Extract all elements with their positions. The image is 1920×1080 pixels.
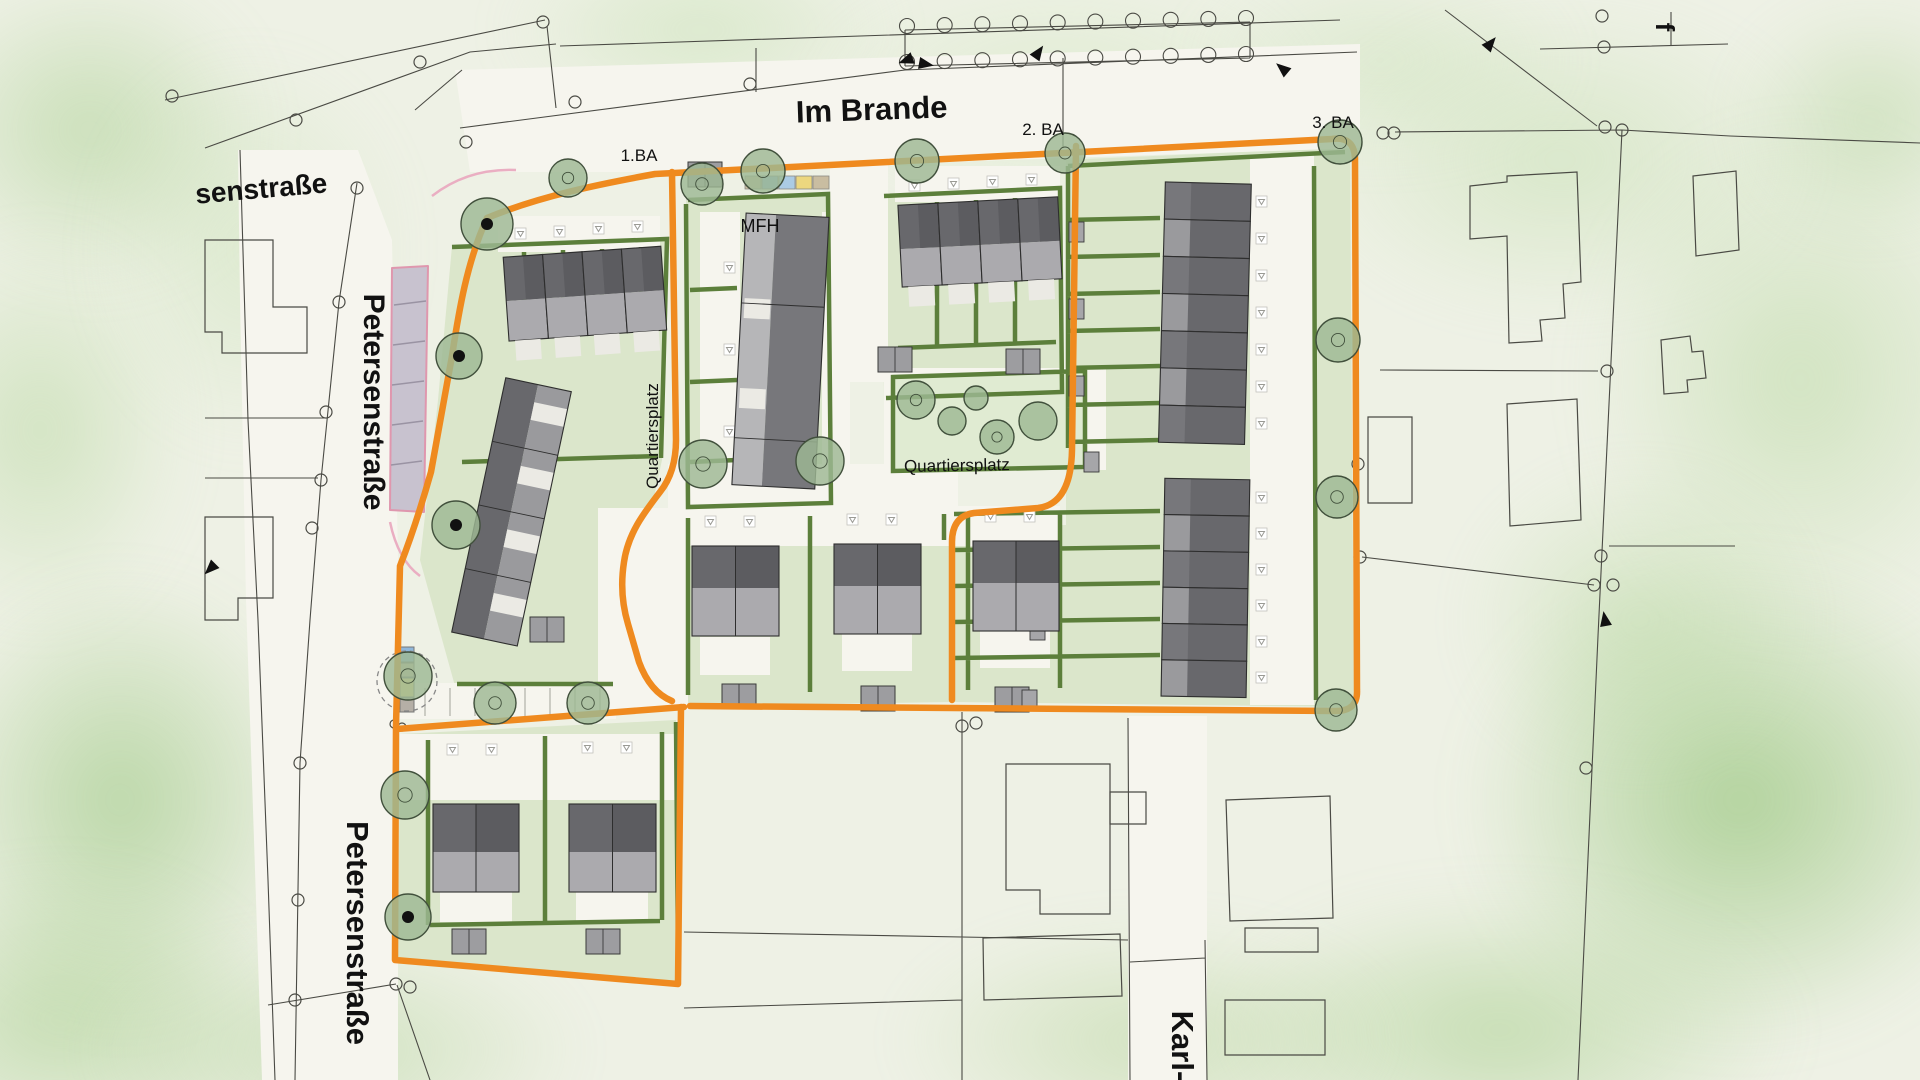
terraced-house-row — [1159, 182, 1252, 445]
street-tree-icon — [900, 19, 915, 34]
street-tree-icon — [1050, 15, 1065, 30]
survey-point-icon — [1607, 579, 1619, 591]
building-new — [1162, 587, 1189, 624]
garden-shed — [1084, 452, 1099, 472]
building-new — [980, 243, 1022, 283]
tree-icon — [796, 437, 844, 485]
playground-square — [796, 176, 812, 189]
survey-point-icon — [1596, 10, 1608, 22]
street-tree-icon — [1088, 14, 1103, 29]
building-new — [940, 245, 982, 285]
street-tree-icon — [975, 17, 990, 32]
building-existing-outline — [1470, 172, 1581, 343]
building-existing-outline — [1507, 399, 1581, 526]
survey-arrow-icon — [200, 560, 219, 579]
plan-label: 1.BA — [621, 146, 659, 165]
building-new — [1159, 368, 1186, 406]
building-new — [1016, 541, 1059, 583]
building-new — [1159, 405, 1186, 443]
survey-point-icon — [970, 717, 982, 729]
survey-point-icon — [1377, 127, 1389, 139]
tree-icon — [895, 139, 939, 183]
tree-icon — [567, 682, 609, 724]
street-area — [400, 734, 680, 800]
site-plan-svg: senstraßePetersenstraßePetersenstraßeIm … — [0, 0, 1920, 1080]
building-new — [1163, 219, 1190, 257]
street-name-label: Petersenstraße — [340, 821, 375, 1045]
street-tree-icon — [937, 18, 952, 33]
building-new — [918, 203, 940, 248]
building-new — [633, 331, 660, 353]
existing-tree-dot-icon — [402, 911, 414, 923]
tree-icon — [1316, 318, 1360, 362]
building-new — [546, 296, 588, 339]
survey-point-icon — [1599, 121, 1611, 133]
building-new — [1164, 478, 1191, 515]
building-new — [744, 298, 771, 319]
terraced-house-row — [1161, 478, 1250, 697]
survey-point-icon — [1388, 127, 1400, 139]
building-new — [900, 247, 942, 287]
street-tree-icon — [1013, 16, 1028, 31]
tree-icon — [549, 159, 587, 197]
existing-tree-dot-icon — [450, 519, 462, 531]
building-new — [602, 249, 625, 294]
street-area — [700, 637, 770, 675]
building-new — [594, 333, 621, 355]
building-existing-outline — [1226, 796, 1333, 921]
building-new — [1164, 182, 1191, 220]
plan-label: 3. BA — [1312, 113, 1354, 132]
building-new — [624, 290, 666, 333]
building-new — [476, 804, 519, 852]
building-new — [1164, 515, 1191, 552]
street-area — [440, 892, 512, 922]
survey-point-icon — [537, 16, 549, 28]
tree-icon — [381, 771, 429, 819]
building-new — [1028, 279, 1055, 300]
building-existing-outline — [1225, 1000, 1325, 1055]
plan-label: MFH — [741, 216, 780, 236]
plan-label: Quartiersplatz — [643, 383, 662, 489]
building-new — [1162, 623, 1189, 660]
duplex-house — [834, 544, 921, 634]
street-name-label: Karl- — [1165, 1011, 1200, 1080]
building-new — [1160, 331, 1187, 369]
building-new — [1020, 241, 1062, 281]
street-area — [576, 892, 648, 922]
duplex-house — [433, 804, 519, 892]
site-plan: senstraßePetersenstraßePetersenstraßeIm … — [0, 0, 1920, 1080]
tree-icon — [1316, 476, 1358, 518]
tree-icon — [474, 682, 516, 724]
building-new — [736, 546, 780, 588]
street-name-label: Im Brande — [795, 89, 948, 129]
tree-icon — [679, 440, 727, 488]
street-area — [598, 508, 688, 710]
survey-point-icon — [414, 56, 426, 68]
tree-icon — [384, 652, 432, 700]
building-new — [585, 293, 627, 336]
building-new — [948, 283, 975, 304]
building-new — [506, 298, 548, 341]
building-new — [739, 388, 766, 409]
curb-line — [432, 170, 516, 196]
building-new — [1038, 197, 1060, 242]
survey-point-icon — [1580, 762, 1592, 774]
building-new — [554, 336, 581, 358]
existing-tree-dot-icon — [481, 218, 493, 230]
building-new — [613, 804, 657, 852]
street-name-label: Petersenstraße — [357, 294, 390, 511]
building-new — [878, 544, 922, 586]
building-new — [908, 285, 935, 306]
building-existing-outline — [1006, 764, 1110, 914]
survey-point-icon — [404, 981, 416, 993]
building-new — [641, 246, 664, 291]
tree-icon — [980, 420, 1014, 454]
building-new — [998, 199, 1020, 244]
building-new — [562, 252, 585, 297]
building-new — [1162, 256, 1189, 294]
survey-point-icon — [1595, 550, 1607, 562]
building-new — [1161, 660, 1188, 697]
plan-label: 2. BA — [1022, 120, 1064, 139]
street-name-label: f — [1650, 23, 1680, 32]
street-tree-icon — [1163, 12, 1178, 27]
survey-point-icon — [1601, 365, 1613, 377]
building-new — [1161, 293, 1188, 331]
tree-icon — [681, 163, 723, 205]
building-new — [523, 255, 546, 300]
tree-icon — [964, 386, 988, 410]
tree-icon — [1315, 689, 1357, 731]
building-existing-outline — [1661, 336, 1706, 394]
plan-label: Quartiersplatz — [904, 455, 1010, 476]
survey-arrow-icon — [1598, 610, 1612, 627]
street-area — [842, 633, 912, 671]
tree-icon — [1019, 402, 1057, 440]
duplex-house — [569, 804, 656, 892]
building-existing-outline — [983, 934, 1122, 1000]
building-new — [988, 281, 1015, 302]
survey-point-icon — [290, 114, 302, 126]
tree-icon — [897, 381, 935, 419]
existing-tree-dot-icon — [453, 350, 465, 362]
duplex-house — [692, 546, 779, 636]
tree-icon — [1045, 133, 1085, 173]
building-new — [515, 339, 542, 361]
building-new — [958, 201, 980, 246]
building-existing-outline — [1245, 928, 1318, 952]
duplex-house — [973, 541, 1059, 631]
building-new — [1163, 551, 1190, 588]
street-tree-icon — [1126, 13, 1141, 28]
tree-icon — [938, 407, 966, 435]
survey-point-icon — [166, 90, 178, 102]
tree-icon — [741, 149, 785, 193]
building-existing-outline — [1368, 417, 1412, 503]
playground-square — [813, 176, 829, 189]
building-existing-outline — [1693, 171, 1739, 256]
